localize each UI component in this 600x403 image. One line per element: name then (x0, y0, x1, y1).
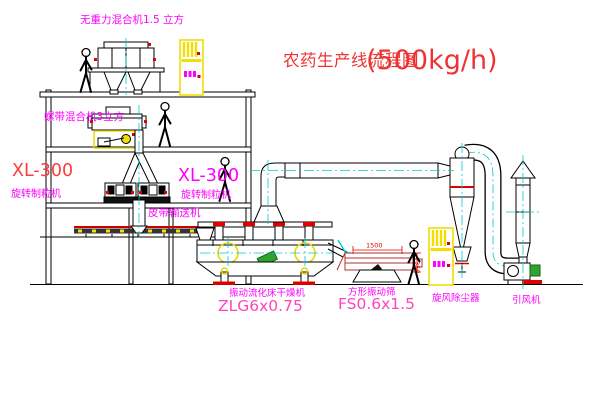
screen-model-label: FS0.6x1.5 (338, 295, 415, 313)
dryer-model-label: ZLG6x0.75 (218, 297, 303, 315)
screen-width-dim: 1500 (366, 242, 383, 250)
worker-figure (160, 103, 171, 147)
control-cabinet-top (180, 40, 203, 95)
granulator-left-model: XL-300 (12, 161, 73, 181)
screen-height-dim: 350 (413, 261, 421, 273)
dryer-exhaust-duct (254, 163, 452, 222)
diagram-capacity: (500kg/h) (366, 45, 498, 76)
fan-label: 引风机 (512, 294, 541, 306)
flow-diagram-svg: 农药生产线流程图 (500kg/h) 无重力混合机1.5 立方 螺带混合机3立方… (0, 0, 600, 403)
granulator-left (104, 183, 137, 203)
ribbon-mixer-label: 螺带混合机3立方 (44, 110, 124, 123)
granulator-mid-model: XL-300 (178, 166, 239, 186)
cyclone-label: 旋风除尘器 (432, 292, 480, 304)
diagram-canvas: 农药生产线流程图 (500kg/h) 无重力混合机1.5 立方 螺带混合机3立方… (0, 0, 600, 403)
control-cabinet-right (429, 228, 453, 285)
zero-gravity-mixer (88, 42, 164, 94)
belt-conveyor-label: 皮带输送机 (148, 206, 201, 219)
fluid-bed-dryer (196, 222, 333, 285)
granulator-left-name: 旋转制粒机 (11, 187, 61, 200)
granulator-mid-name: 旋转制粒机 (181, 188, 231, 201)
top-mixer-label: 无重力混合机1.5 立方 (80, 13, 184, 26)
